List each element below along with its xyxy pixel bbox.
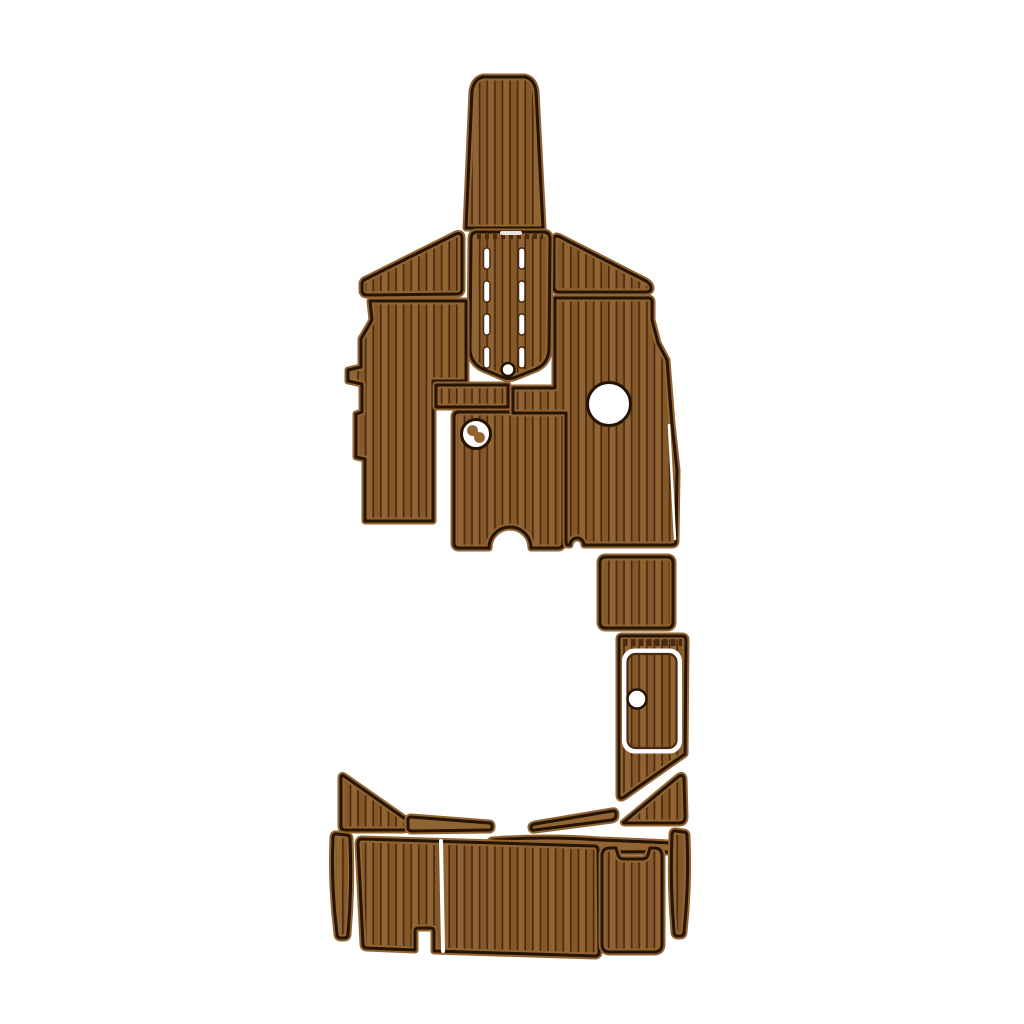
engine-hatch-latch-cutout	[628, 690, 647, 709]
piece-step-pad-layer	[600, 557, 673, 628]
drain-slot	[484, 347, 491, 368]
piece-swim-platform-pad-layer	[358, 839, 599, 956]
cleat-cutout	[462, 420, 491, 449]
cleat-cap-center	[473, 431, 479, 437]
drain-slot	[484, 281, 491, 302]
drain-slot	[519, 281, 526, 302]
boat-deck-pad-illustration	[0, 0, 1024, 1024]
piece-starboard-edge-strip	[671, 831, 687, 936]
swim-platform-seam	[441, 841, 443, 951]
product-image-boat-decking-kit	[0, 0, 1024, 1024]
helm-hatch-ring-cutout	[502, 363, 515, 376]
piece-bow-pad	[466, 77, 543, 228]
drain-slot	[519, 314, 526, 335]
piece-helm-hatch-pad	[470, 232, 550, 379]
helm-hatch-top-dash	[500, 231, 522, 235]
piece-helm-hatch-pad-layer	[470, 232, 550, 379]
piece-transom-step-pad	[602, 848, 662, 952]
drain-slot	[519, 248, 526, 269]
piece-center-small-pad	[436, 385, 508, 407]
drain-slot	[484, 314, 491, 335]
drain-slot	[519, 347, 526, 368]
seat-base-cutout	[588, 383, 631, 426]
piece-port-trim-strip	[408, 817, 492, 831]
piece-bow-pad-layer	[466, 77, 543, 228]
piece-port-edge-strip	[333, 834, 351, 938]
piece-step-pad	[600, 557, 673, 628]
drain-slot	[484, 248, 491, 269]
piece-transom-step-pad-layer	[602, 848, 662, 952]
piece-swim-platform-pad	[358, 839, 599, 956]
